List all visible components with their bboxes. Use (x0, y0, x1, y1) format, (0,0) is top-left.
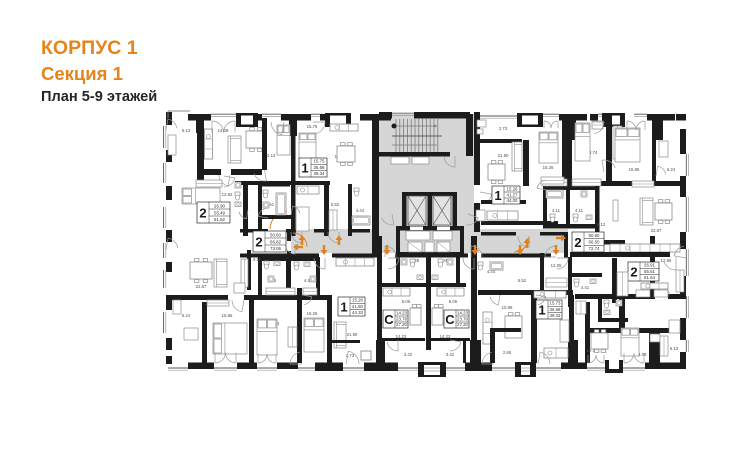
svg-text:15.75: 15.75 (307, 124, 318, 129)
svg-text:41.60: 41.60 (352, 304, 364, 309)
svg-text:15.73: 15.73 (550, 301, 562, 306)
svg-text:44.00: 44.00 (507, 198, 519, 203)
svg-text:50.60: 50.60 (589, 233, 601, 238)
svg-text:15.26: 15.26 (307, 311, 318, 316)
svg-text:15.86: 15.86 (222, 313, 233, 318)
svg-text:2: 2 (255, 234, 262, 249)
svg-text:15.75: 15.75 (314, 159, 326, 164)
svg-text:36.68: 36.68 (314, 165, 326, 170)
svg-text:3.42: 3.42 (404, 352, 413, 357)
svg-text:10.99: 10.99 (502, 305, 513, 310)
svg-text:66.82: 66.82 (270, 239, 282, 244)
svg-text:С: С (384, 312, 394, 327)
svg-text:21.90: 21.90 (498, 153, 509, 158)
svg-text:12.85: 12.85 (661, 258, 672, 263)
svg-text:23.78: 23.78 (457, 316, 469, 321)
svg-text:36.68: 36.68 (550, 307, 562, 312)
svg-text:44.33: 44.33 (352, 310, 364, 315)
svg-text:5.52: 5.52 (518, 278, 527, 283)
svg-text:55.49: 55.49 (214, 210, 226, 215)
svg-text:9.12: 9.12 (597, 222, 606, 227)
svg-text:41.27: 41.27 (507, 192, 519, 197)
svg-text:6.13: 6.13 (182, 128, 191, 133)
svg-text:5.06: 5.06 (449, 299, 458, 304)
svg-text:5.52: 5.52 (331, 202, 340, 207)
svg-text:72.74: 72.74 (589, 246, 601, 251)
svg-text:2: 2 (199, 205, 206, 220)
svg-text:Секция 1: Секция 1 (41, 63, 123, 84)
svg-text:12.05: 12.05 (551, 263, 562, 268)
svg-text:6.13: 6.13 (670, 346, 679, 351)
svg-text:73.06: 73.06 (270, 246, 282, 251)
svg-text:4.11: 4.11 (575, 208, 584, 213)
svg-text:5.06: 5.06 (402, 299, 411, 304)
svg-text:1: 1 (301, 160, 308, 175)
svg-text:12.82: 12.82 (222, 192, 233, 197)
svg-text:15.26: 15.26 (543, 165, 554, 170)
svg-text:26.91: 26.91 (644, 263, 656, 268)
svg-text:2.73: 2.73 (499, 126, 508, 131)
svg-text:1: 1 (340, 299, 347, 314)
svg-text:4.44: 4.44 (356, 208, 365, 213)
svg-text:15.26: 15.26 (352, 298, 364, 303)
svg-text:14.23: 14.23 (396, 310, 408, 315)
svg-text:22.67: 22.67 (651, 228, 662, 233)
svg-text:6.24: 6.24 (667, 167, 676, 172)
svg-text:66.50: 66.50 (589, 240, 601, 245)
svg-text:26.90: 26.90 (214, 203, 226, 208)
svg-text:14.23: 14.23 (457, 310, 469, 315)
svg-text:4.11: 4.11 (552, 208, 561, 213)
svg-text:14.23: 14.23 (440, 334, 451, 339)
svg-text:КОРПУС 1: КОРПУС 1 (41, 37, 138, 59)
svg-text:15.26: 15.26 (507, 186, 519, 191)
svg-text:50.60: 50.60 (270, 232, 282, 237)
svg-text:14.23: 14.23 (396, 334, 407, 339)
svg-text:27.20: 27.20 (396, 322, 408, 327)
svg-text:22.67: 22.67 (196, 284, 207, 289)
svg-text:1: 1 (494, 188, 501, 203)
svg-text:39.33: 39.33 (550, 313, 562, 318)
svg-text:2: 2 (630, 264, 637, 279)
svg-text:3.42: 3.42 (446, 352, 455, 357)
svg-text:2: 2 (574, 235, 581, 250)
svg-text:С: С (445, 312, 455, 327)
svg-text:55.51: 55.51 (644, 269, 656, 274)
svg-text:21.90: 21.90 (347, 332, 358, 337)
svg-text:27.20: 27.20 (457, 322, 469, 327)
svg-text:6.24: 6.24 (182, 313, 191, 318)
svg-text:9.11: 9.11 (253, 257, 262, 262)
svg-text:39.34: 39.34 (314, 171, 326, 176)
svg-text:23.78: 23.78 (396, 316, 408, 321)
svg-text:61.62: 61.62 (214, 217, 226, 222)
svg-text:61.64: 61.64 (644, 275, 656, 280)
svg-text:15.86: 15.86 (629, 167, 640, 172)
svg-text:План 5-9 этажей: План 5-9 этажей (41, 89, 157, 105)
svg-text:4.41: 4.41 (581, 285, 590, 290)
svg-text:2.65: 2.65 (503, 350, 512, 355)
